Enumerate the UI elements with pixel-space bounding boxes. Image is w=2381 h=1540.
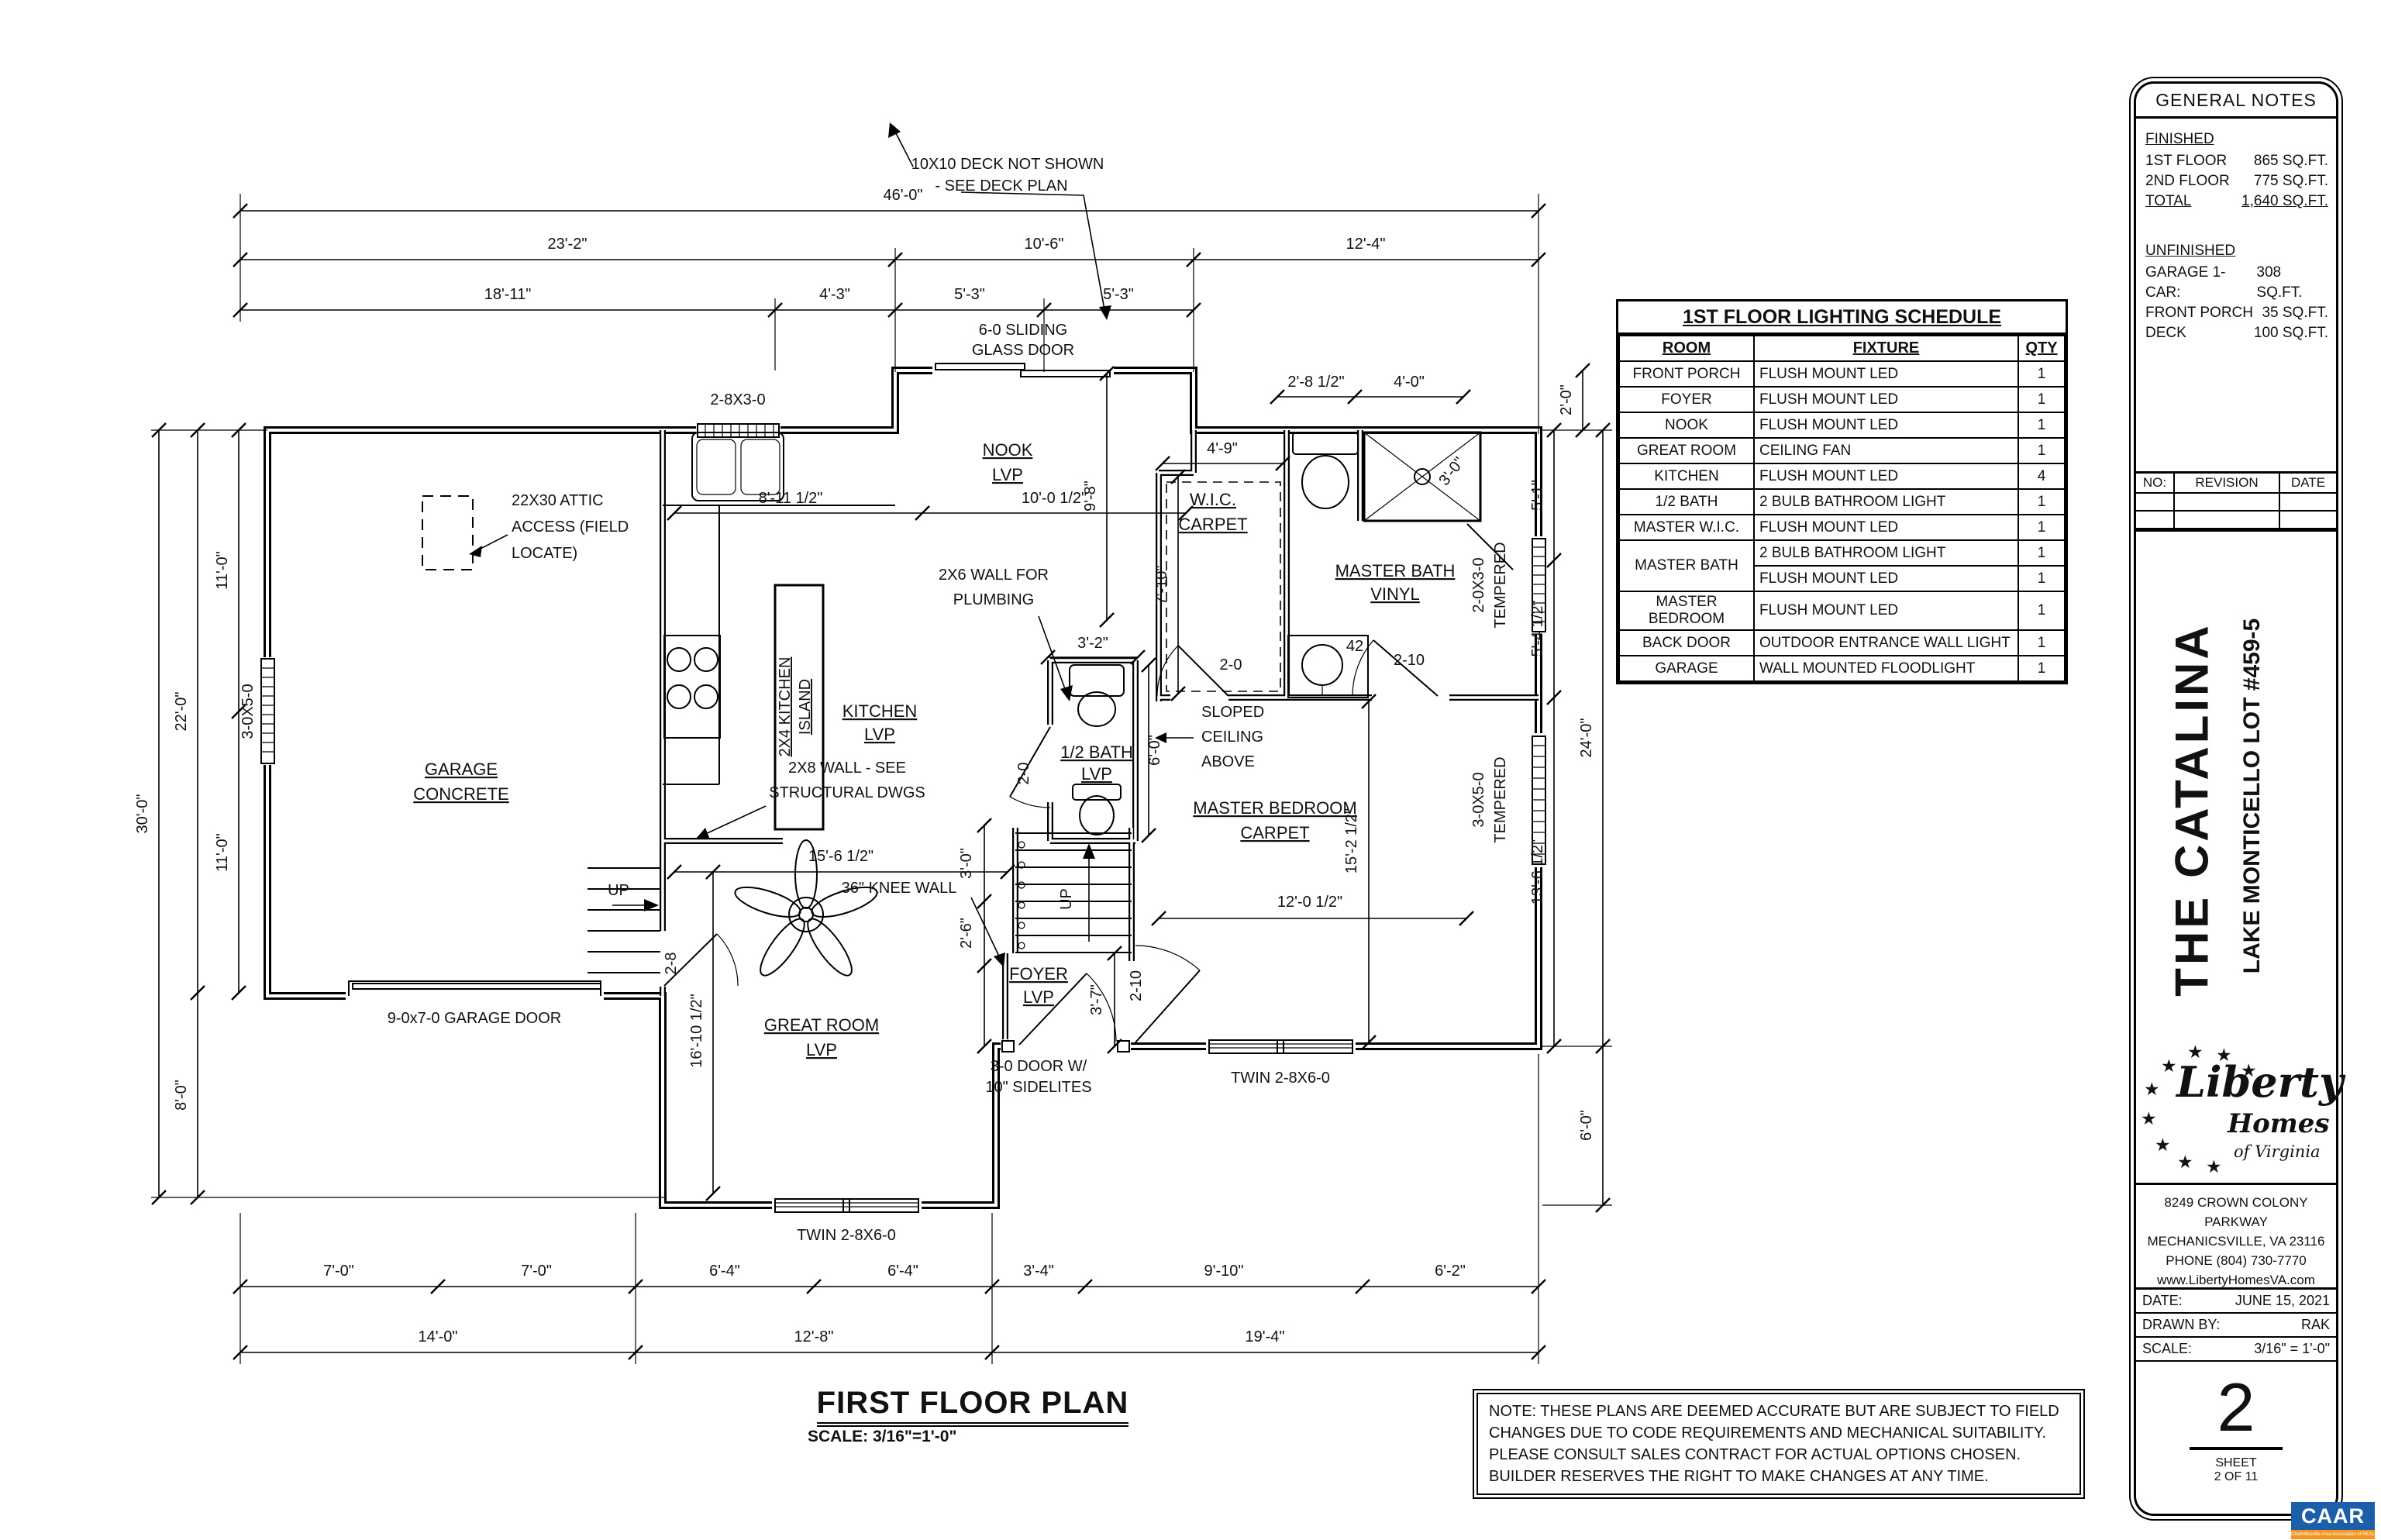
caar-wordmark: CAAR	[2291, 1502, 2375, 1530]
garage-door-label: 9-0x7-0 GARAGE DOOR	[388, 1010, 562, 1027]
dim-label: 15'-6 1/2"	[808, 848, 873, 865]
logo-liberty-text: Liberty	[2176, 1057, 2343, 1107]
dim-label: 7'-0"	[521, 1263, 552, 1280]
address-line: PHONE (804) 730-7770	[2136, 1251, 2336, 1270]
area-row: TOTAL1,640 SQ.FT.	[2145, 191, 2328, 212]
table-row: FOYERFLUSH MOUNT LED1	[1619, 387, 2065, 412]
sloped-ceiling-note: CEILING	[1201, 729, 1263, 746]
date-row: DATE: JUNE 15, 2021	[2136, 1290, 2336, 1314]
room-label: CONCRETE	[413, 784, 508, 804]
attic-access	[422, 496, 508, 570]
sloped-ceiling-note: ABOVE	[1201, 753, 1255, 770]
table-row: MASTER W.I.C.FLUSH MOUNT LED1	[1619, 515, 2065, 540]
schedule-header: QTY	[2018, 336, 2065, 361]
plan-name: THE CATALINA	[2166, 562, 2219, 1058]
dim-label: 30'-0"	[134, 794, 151, 834]
room-label: CARPET	[1240, 823, 1309, 842]
plan-annotations: 10X10 DECK NOT SHOWN - SEE DECK PLAN 46'…	[134, 156, 1595, 1345]
star-icon: ★	[2155, 1135, 2171, 1156]
area-row: 1ST FLOOR865 SQ.FT.	[2145, 151, 2328, 171]
title-block: GENERAL NOTES FINISHED 1ST FLOOR865 SQ.F…	[2134, 81, 2338, 1516]
dim-label: 24'-0"	[1578, 718, 1595, 758]
address-line: MECHANICSVILLE, VA 23116	[2136, 1232, 2336, 1251]
address-line: 8249 CROWN COLONY PARKWAY	[2136, 1193, 2336, 1232]
revision-header: NO:	[2136, 474, 2175, 494]
revision-header: DATE	[2280, 474, 2336, 494]
general-notes-body: FINISHED 1ST FLOOR865 SQ.FT. 2ND FLOOR77…	[2136, 119, 2336, 471]
table-row: GARAGEWALL MOUNTED FLOODLIGHT1	[1619, 656, 2065, 681]
table-row: 1/2 BATH2 BULB BATHROOM LIGHT1	[1619, 489, 2065, 515]
dim-label: 4'-3"	[819, 286, 850, 303]
dim-label: 6'-4"	[709, 1263, 740, 1280]
dim-label: 7'-10"	[1153, 566, 1170, 605]
dim-label: 5'-3"	[954, 286, 985, 303]
room-label: LVP	[864, 725, 895, 744]
dim-label: 3'-0"	[958, 848, 975, 879]
room-label: KITCHEN	[842, 701, 918, 721]
logo-homes-text: Homes	[2228, 1108, 2330, 1139]
dim-label: 6'-0"	[1578, 1110, 1595, 1141]
room-label: GREAT ROOM	[764, 1015, 879, 1035]
room-label: LVP	[806, 1040, 837, 1059]
lighting-schedule: 1ST FLOOR LIGHTING SCHEDULE ROOM FIXTURE…	[1616, 299, 2068, 684]
area-row: FRONT PORCH35 SQ.FT.	[2145, 303, 2328, 323]
plan-title: FIRST FLOOR PLAN	[806, 1386, 1139, 1427]
dim-label: 10'-0 1/2"	[1022, 490, 1087, 507]
lot-name: LAKE MONTICELLO LOT #459-5	[2239, 548, 2266, 1044]
star-icon: ★	[2141, 1108, 2157, 1129]
star-icon: ★	[2161, 1056, 2177, 1077]
attic-note: LOCATE)	[512, 545, 577, 562]
room-label: MASTER BATH	[1335, 561, 1456, 581]
drawn-by-row: DRAWN BY: RAK	[2136, 1314, 2336, 1338]
dimension-ticks	[152, 204, 1610, 1359]
dim-label: 10'-6"	[1025, 236, 1064, 253]
plan-title-text: FIRST FLOOR PLAN	[817, 1386, 1129, 1427]
structural-wall-note: STRUCTURAL DWGS	[769, 784, 925, 801]
revision-table: NO: REVISION DATE	[2136, 471, 2336, 532]
up-label: UP	[1058, 888, 1075, 910]
room-label: NOOK	[983, 440, 1033, 460]
unfinished-heading: UNFINISHED	[2145, 241, 2328, 261]
finished-heading: FINISHED	[2145, 129, 2328, 150]
builder-logo: ★ ★ ★ ★ ★ ★ ★ ★ ★ Liberty Homes of Virgi…	[2136, 1034, 2336, 1183]
deck-note: - SEE DECK PLAN	[935, 177, 1067, 195]
scale-value: 3/16" = 1'-0"	[2254, 1341, 2330, 1357]
room-label: 1/2 BATH	[1060, 742, 1133, 762]
revision-cell	[2136, 512, 2175, 529]
scale-row: SCALE: 3/16" = 1'-0"	[2136, 1338, 2336, 1362]
dim-label: 3'-2"	[1077, 635, 1108, 652]
dim-label: 23'-2"	[548, 236, 587, 253]
dim-label: 11'-0"	[214, 551, 231, 589]
dim-label: 8'-0"	[173, 1080, 190, 1111]
dim-label: 12'-0 1/2"	[1277, 894, 1342, 911]
floor-plan-drawing: 10X10 DECK NOT SHOWN - SEE DECK PLAN 46'…	[0, 0, 2381, 1540]
dim-label: 3'-4"	[1023, 1263, 1054, 1280]
dim-label: 5'-3"	[1103, 286, 1134, 303]
schedule-title: 1ST FLOOR LIGHTING SCHEDULE	[1618, 301, 2066, 335]
dim-label: 9'-10"	[1204, 1263, 1244, 1280]
window-label: 3-0X5-0	[239, 684, 257, 739]
dim-label: 6'-0"	[1146, 735, 1163, 766]
attic-note: ACCESS (FIELD	[512, 519, 629, 536]
sheet-info: DATE: JUNE 15, 2021 DRAWN BY: RAK SCALE:…	[2136, 1287, 2336, 1362]
note-line: BUILDER RESERVES THE RIGHT TO MAKE CHANG…	[1489, 1466, 2069, 1487]
sliding-door-label: GLASS DOOR	[972, 342, 1074, 359]
dim-label: 2'-6"	[958, 918, 975, 949]
drawn-by-value: RAK	[2301, 1317, 2330, 1333]
schedule-header: ROOM	[1619, 336, 1754, 361]
dim-label: 12'-4"	[1346, 236, 1386, 253]
table-row: NOOKFLUSH MOUNT LED1	[1619, 412, 2065, 438]
dim-label: 2'-8 1/2"	[1287, 374, 1344, 391]
revision-header: REVISION	[2175, 474, 2280, 494]
dim-label: 13'-6 1/2"	[1529, 839, 1546, 904]
table-row: MASTER BATH2 BULB BATHROOM LIGHT1	[1619, 540, 2065, 566]
sheet-of: 2 OF 11	[2214, 1470, 2259, 1484]
dim-label: 6'-2"	[1435, 1263, 1466, 1280]
up-label: UP	[608, 882, 629, 899]
star-icon: ★	[2206, 1156, 2222, 1177]
plumbing-wall-note: 2X6 WALL FOR	[939, 567, 1049, 584]
revision-cell	[2280, 494, 2336, 512]
dim-label: 11'-0"	[214, 833, 231, 871]
table-row: BACK DOOROUTDOOR ENTRANCE WALL LIGHT1	[1619, 630, 2065, 656]
schedule-header: FIXTURE	[1754, 336, 2018, 361]
front-door-label: 10" SIDELITES	[985, 1079, 1091, 1096]
floor-plan-sheet: { "schedule": { "title": "1ST FLOOR LIGH…	[0, 0, 2381, 1540]
date-label: DATE:	[2142, 1293, 2183, 1309]
dim-label: 2'-0"	[1558, 384, 1575, 415]
structural-wall-note: 2X8 WALL - SEE	[788, 760, 906, 777]
dim-label: 3'-0"	[1435, 454, 1468, 489]
door-size-label: 2-10	[1128, 970, 1145, 1001]
logo-of-virginia-text: of Virginia	[2234, 1142, 2321, 1161]
window-label: TWIN 2-8X6-0	[797, 1227, 896, 1244]
front-door-label: 3-0 DOOR W/	[991, 1058, 1087, 1075]
dim-label: 18'-11"	[484, 286, 532, 303]
dim-label: 4'-9"	[1207, 440, 1238, 457]
caar-tagline: Charlottesville Area Association of REAL…	[2291, 1530, 2375, 1539]
dim-label: 3'-7"	[1088, 984, 1105, 1015]
vanity-size-label: 42	[1346, 638, 1363, 655]
date-value: JUNE 15, 2021	[2235, 1293, 2330, 1309]
island-label: 2X4 KITCHEN	[777, 657, 794, 757]
sheet-label: SHEET	[2215, 1456, 2256, 1470]
scale-label: SCALE:	[2142, 1341, 2192, 1357]
island-label: ISLAND	[797, 679, 814, 735]
dim-label: 8'-11 1/2"	[759, 490, 823, 507]
general-notes-title: GENERAL NOTES	[2136, 84, 2336, 119]
sloped-ceiling-note: SLOPED	[1201, 704, 1264, 721]
schedule-header-row: ROOM FIXTURE QTY	[1619, 336, 2065, 361]
room-label: GARAGE	[425, 760, 498, 779]
revision-cell	[2280, 512, 2336, 529]
plumbing-wall-note: PLUMBING	[953, 591, 1034, 608]
sliding-door-label: 6-0 SLIDING	[979, 322, 1067, 339]
dim-label: 19'-4"	[1246, 1328, 1285, 1345]
star-icon: ★	[2144, 1079, 2160, 1100]
window-label: 3-0X5-0	[1470, 772, 1487, 827]
dim-label: 14'-0"	[419, 1328, 458, 1345]
room-label: LVP	[1081, 764, 1112, 784]
dim-label: 6'-4"	[887, 1263, 918, 1280]
window-label: TEMPERED	[1492, 542, 1509, 628]
note-line: NOTE: THESE PLANS ARE DEEMED ACCURATE BU…	[1489, 1400, 2069, 1422]
interior-walls	[663, 430, 1539, 1046]
window-label: 2-0X3-0	[1470, 557, 1487, 612]
door-size-label: 2-0	[1015, 763, 1032, 785]
room-label: LVP	[992, 465, 1023, 484]
dim-label: 16'-10 1/2"	[688, 994, 705, 1067]
revision-cell	[2175, 512, 2280, 529]
dim-label: 46'-0"	[884, 187, 923, 204]
table-row: MASTER BEDROOMFLUSH MOUNT LED1	[1619, 591, 2065, 630]
plan-scale-note: SCALE: 3/16"=1'-0"	[808, 1428, 956, 1446]
attic-note: 22X30 ATTIC	[512, 492, 604, 509]
room-label: VINYL	[1370, 584, 1420, 604]
area-row: DECK100 SQ.FT.	[2145, 323, 2328, 343]
door-size-label: 2-0	[1220, 656, 1242, 674]
room-label: LVP	[1023, 987, 1054, 1007]
deck-note: 10X10 DECK NOT SHOWN	[911, 156, 1104, 173]
window-label: TEMPERED	[1492, 756, 1509, 842]
note-line: PLEASE CONSULT SALES CONTRACT FOR ACTUAL…	[1489, 1444, 2069, 1466]
area-row: 2ND FLOOR775 SQ.FT.	[2145, 171, 2328, 191]
door-size-label: 2-10	[1394, 652, 1425, 669]
caar-logo: CAAR Charlottesville Area Association of…	[2291, 1502, 2375, 1539]
note-line: CHANGES DUE TO CODE REQUIREMENTS AND MEC…	[1489, 1422, 2069, 1444]
drawn-by-label: DRAWN BY:	[2142, 1317, 2220, 1333]
door-size-label: 2-8	[663, 953, 680, 975]
plan-name-area: THE CATALINA LAKE MONTICELLO LOT #459-5	[2136, 532, 2336, 1034]
revision-cell	[2136, 494, 2175, 512]
dim-label: 4'-0"	[1394, 374, 1425, 391]
dim-label: 15'-2 1/2"	[1343, 808, 1360, 873]
room-label: FOYER	[1009, 964, 1068, 984]
disclaimer-note: NOTE: THESE PLANS ARE DEEMED ACCURATE BU…	[1476, 1393, 2081, 1495]
window-label: 2-8X3-0	[710, 391, 765, 408]
knee-wall-note: 36" KNEE WALL	[842, 880, 957, 897]
revision-cell	[2175, 494, 2280, 512]
dimension-lines	[151, 194, 1612, 1364]
sheet-number-area: 2 SHEET 2 OF 11	[2136, 1362, 2336, 1514]
area-row: GARAGE 1-CAR:308 SQ.FT.	[2145, 263, 2328, 303]
room-label: MASTER BEDROOM	[1193, 798, 1356, 818]
dim-label: 5'-1"	[1529, 480, 1546, 511]
dim-label: 5'-4 1/2"	[1529, 600, 1546, 656]
dim-label: 7'-0"	[323, 1263, 354, 1280]
sheet-number: 2	[2190, 1373, 2283, 1450]
table-row: GREAT ROOMCEILING FAN1	[1619, 438, 2065, 463]
table-row: FRONT PORCHFLUSH MOUNT LED1	[1619, 361, 2065, 387]
dim-label: 12'-8"	[794, 1328, 834, 1345]
star-icon: ★	[2177, 1152, 2193, 1173]
builder-address: 8249 CROWN COLONY PARKWAY MECHANICSVILLE…	[2136, 1183, 2336, 1287]
room-label: W.I.C.	[1190, 490, 1236, 509]
dim-label: 22'-0"	[173, 692, 190, 732]
window-label: TWIN 2-8X6-0	[1231, 1070, 1330, 1087]
room-label: CARPET	[1178, 515, 1247, 534]
table-row: KITCHENFLUSH MOUNT LED4	[1619, 463, 2065, 489]
